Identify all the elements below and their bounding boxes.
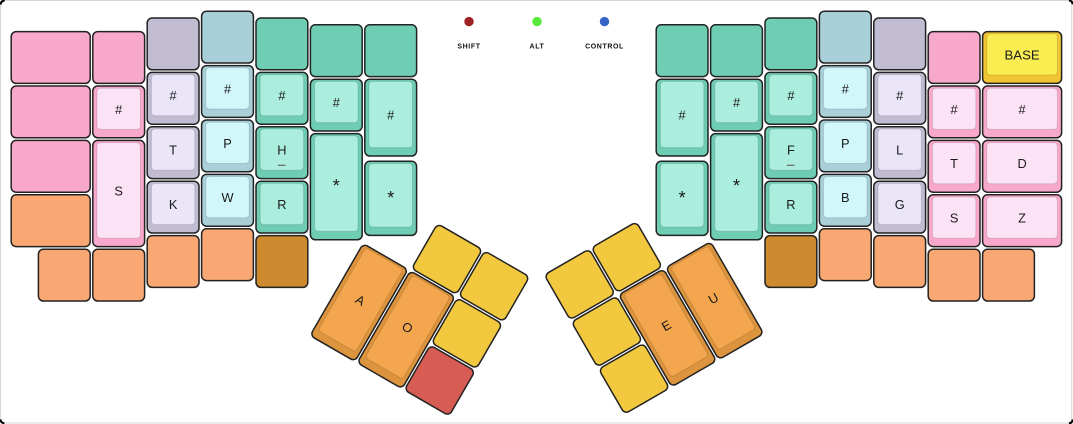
svg-text:G: G [895, 197, 905, 212]
svg-text:*: * [733, 176, 740, 196]
svg-text:BASE: BASE [1005, 47, 1040, 62]
svg-text:ALT: ALT [530, 44, 545, 51]
svg-text:#: # [170, 88, 178, 103]
svg-text:CONTROL: CONTROL [585, 44, 624, 51]
svg-text:#: # [333, 95, 341, 110]
svg-text:#: # [842, 81, 850, 96]
svg-text:K: K [169, 197, 178, 212]
svg-text:L: L [896, 143, 903, 158]
svg-text:SHIFT: SHIFT [457, 44, 480, 51]
svg-text:#: # [951, 102, 959, 117]
svg-text:#: # [896, 88, 904, 103]
svg-text:#: # [387, 108, 395, 123]
svg-text:R: R [786, 197, 795, 212]
svg-text:#: # [733, 95, 741, 110]
svg-text:#: # [787, 88, 795, 103]
svg-text:T: T [169, 143, 177, 158]
svg-text:*: * [387, 188, 394, 208]
svg-text:#: # [1019, 102, 1027, 117]
svg-text:D: D [1017, 156, 1026, 171]
svg-text:H: H [277, 143, 286, 158]
svg-text:W: W [221, 190, 234, 205]
svg-text:F: F [787, 143, 795, 158]
svg-text:P: P [841, 136, 850, 151]
svg-text:T: T [950, 156, 958, 171]
svg-text:*: * [333, 176, 340, 196]
svg-text:P: P [223, 136, 232, 151]
svg-text:S: S [114, 183, 123, 198]
svg-text:S: S [950, 211, 959, 226]
svg-text:R: R [277, 197, 286, 212]
svg-text:#: # [679, 108, 687, 123]
svg-text:B: B [841, 190, 850, 205]
svg-text:Z: Z [1018, 211, 1026, 226]
svg-text:*: * [679, 188, 686, 208]
svg-text:#: # [278, 88, 286, 103]
svg-text:#: # [224, 81, 232, 96]
svg-text:#: # [115, 102, 123, 117]
